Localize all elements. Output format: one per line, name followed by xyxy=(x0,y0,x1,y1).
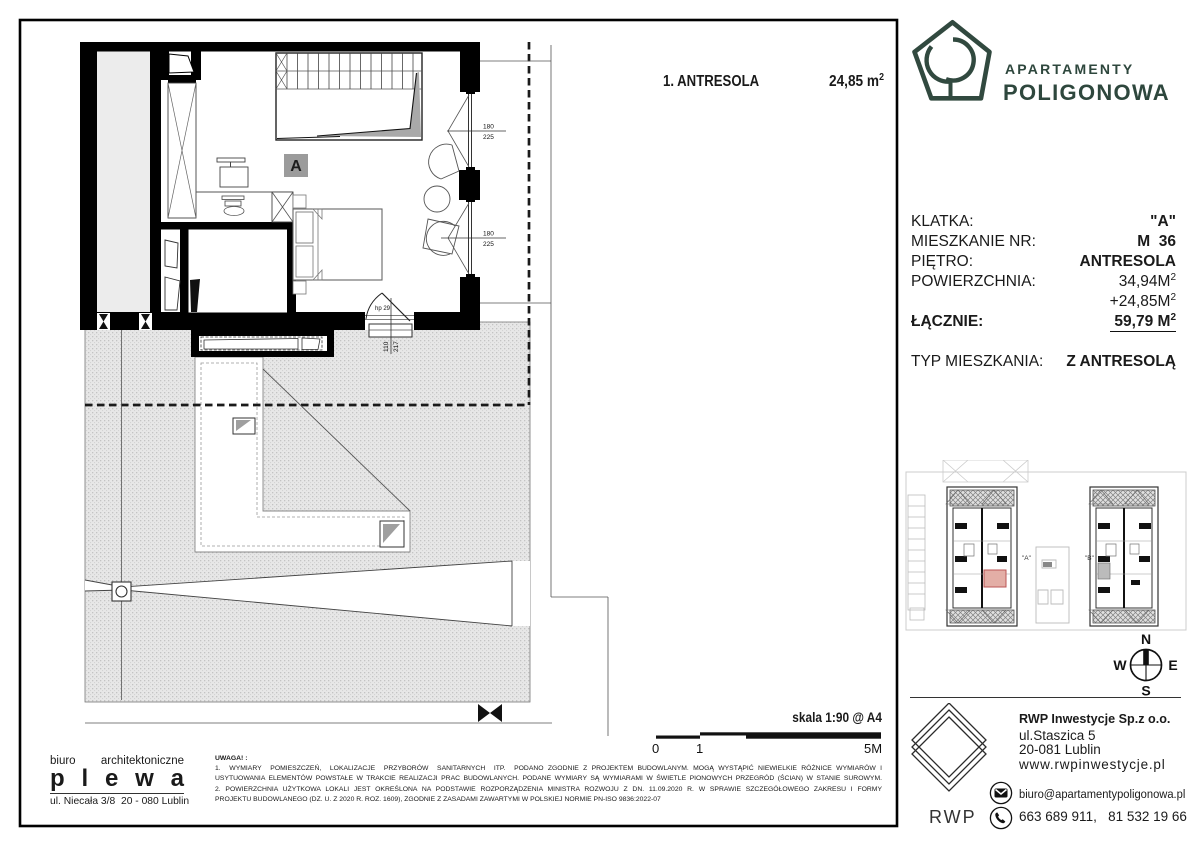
svg-text:W: W xyxy=(1113,657,1127,673)
svg-text:217: 217 xyxy=(393,341,400,352)
svg-text:225: 225 xyxy=(483,134,494,141)
svg-text:POLIGONOWA: POLIGONOWA xyxy=(1003,80,1170,105)
svg-text:N: N xyxy=(1141,631,1151,647)
svg-text:110: 110 xyxy=(383,341,390,352)
svg-text:A: A xyxy=(290,158,302,175)
svg-text:"A": "A" xyxy=(1022,555,1032,562)
svg-text:0: 0 xyxy=(652,741,659,756)
svg-text:1: 1 xyxy=(696,741,703,756)
svg-text:225: 225 xyxy=(483,241,494,248)
svg-text:APARTAMENTY: APARTAMENTY xyxy=(1005,61,1134,77)
svg-text:180: 180 xyxy=(483,231,494,238)
svg-text:"B": "B" xyxy=(1085,555,1095,562)
svg-text:hp 29: hp 29 xyxy=(375,306,391,312)
svg-text:5M: 5M xyxy=(864,741,882,756)
svg-text:E: E xyxy=(1168,657,1177,673)
svg-text:180: 180 xyxy=(483,124,494,131)
